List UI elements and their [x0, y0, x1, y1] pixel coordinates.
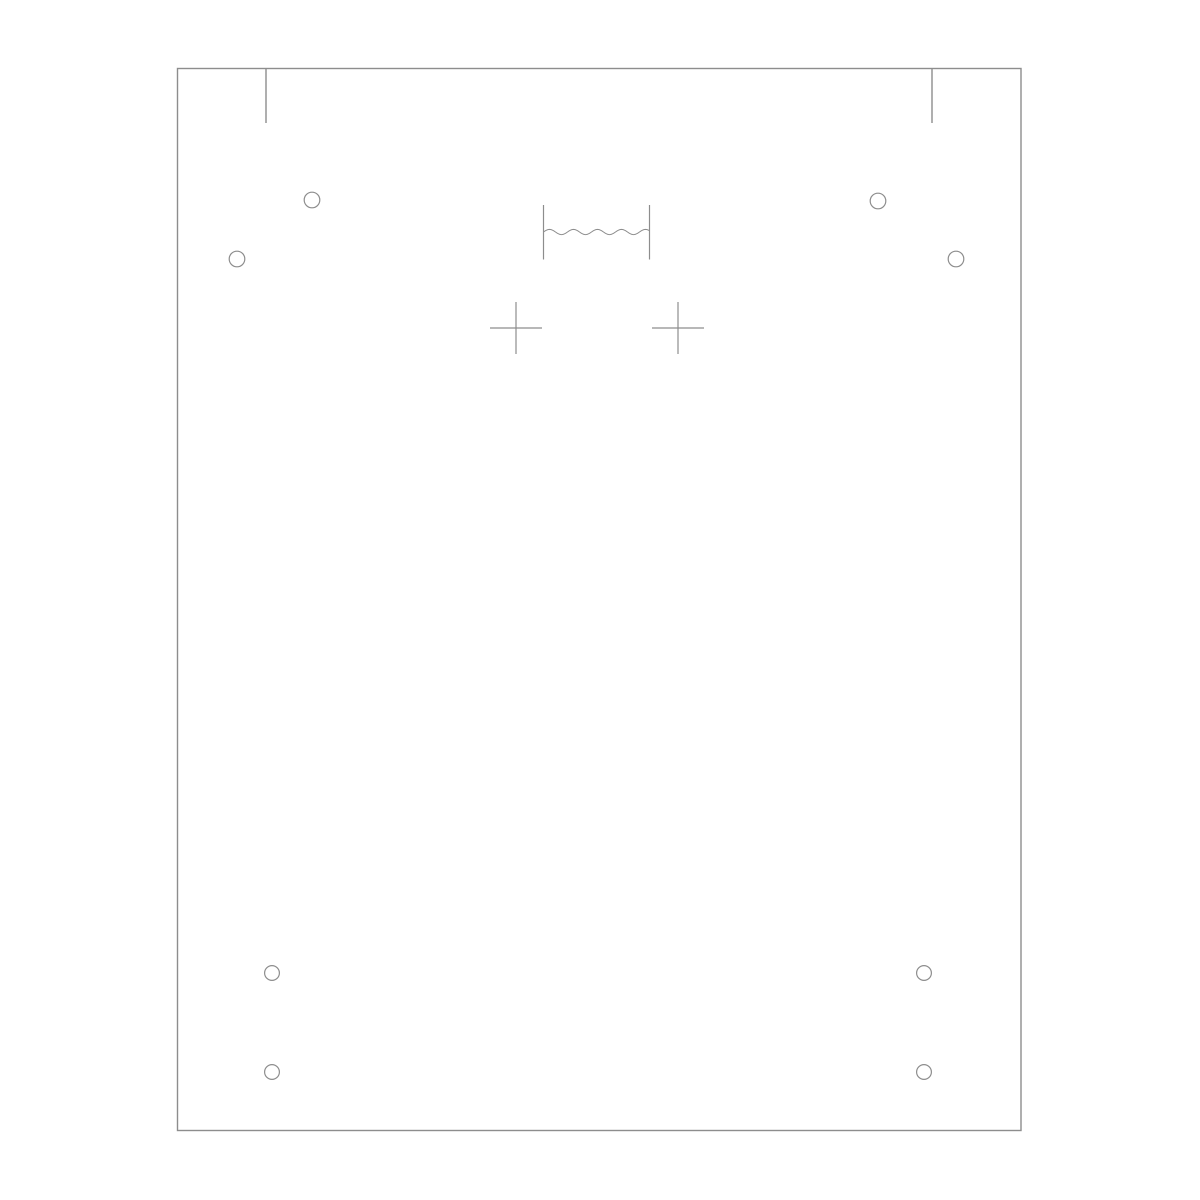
drill-hole-1 — [304, 192, 320, 208]
technical-drawing-canvas — [0, 0, 1200, 1200]
drill-hole-8 — [917, 1065, 932, 1080]
drill-hole-2 — [229, 251, 245, 267]
crosshair-mark-1 — [490, 302, 542, 354]
crosshair-mark-2 — [652, 302, 704, 354]
break-symbol-wavy-line — [544, 229, 650, 234]
drill-hole-7 — [917, 966, 932, 981]
break-symbol — [544, 205, 650, 260]
drawing-svg — [0, 0, 1200, 1200]
drill-hole-6 — [265, 1065, 280, 1080]
drill-hole-5 — [265, 966, 280, 981]
drill-hole-3 — [870, 193, 886, 209]
panel-outline — [178, 69, 1022, 1131]
drill-hole-4 — [948, 251, 964, 267]
